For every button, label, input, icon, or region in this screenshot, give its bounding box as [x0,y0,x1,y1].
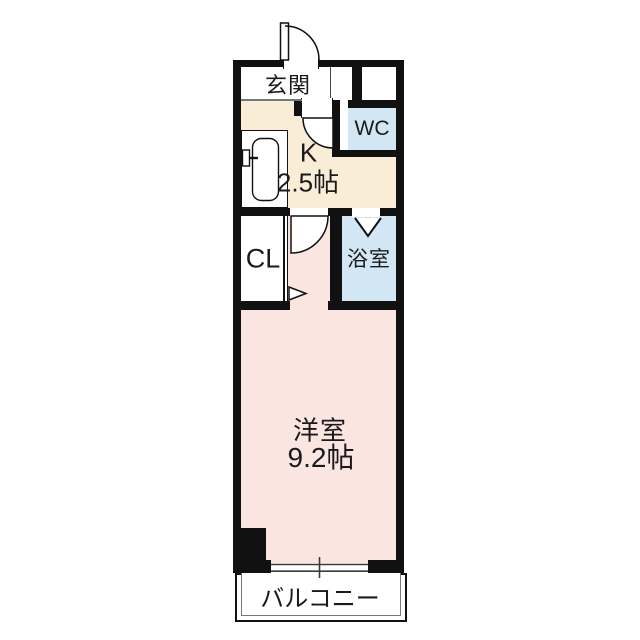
utility-compartment [362,67,396,100]
wall [328,301,404,310]
balcony-label: バルコニー [260,579,380,614]
floorplan: 玄関 WC K 2.5帖 CL 浴室 洋室 9.2帖 バルコニー [0,0,640,640]
wall [233,301,290,310]
wall [233,560,271,573]
closet-label: CL [246,244,281,275]
wall [396,60,404,573]
main-room-size-label: 9.2帖 [288,436,355,476]
wc-label: WC [355,117,390,141]
wall [233,208,290,216]
kitchen-door-opening [301,98,333,118]
wall [233,60,241,573]
bathroom-door-opening [352,208,380,217]
wall [332,150,396,157]
wall [348,100,396,108]
wall [330,208,342,310]
hallway [288,216,330,310]
kitchen-size-label: 2.5帖 [277,163,339,200]
wall [380,208,404,216]
kitchen-room-extension [332,157,396,208]
bathroom-label: 浴室 [347,243,391,273]
closet-door-track [283,216,285,301]
wc-door-opening [340,108,348,150]
wall [368,560,404,573]
entrance-door-icon [281,23,320,60]
entrance-label: 玄関 [265,68,311,100]
